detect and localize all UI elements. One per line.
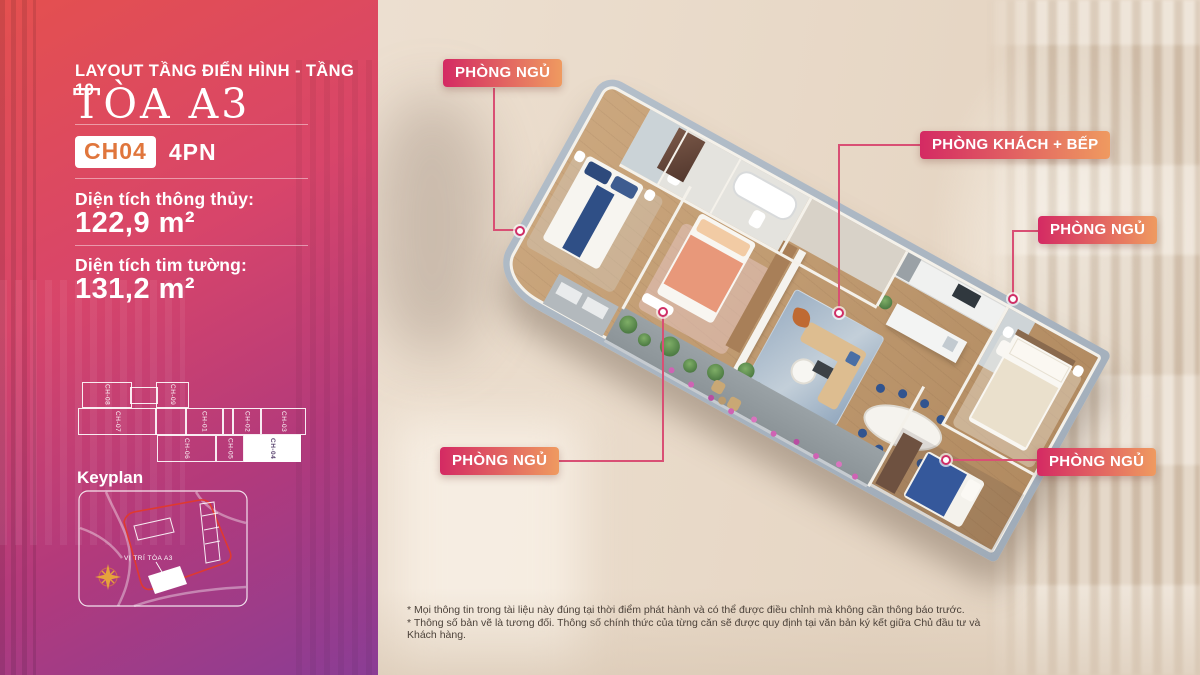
compass-icon [95, 564, 121, 590]
strip-unit-ch06: CH-06 [157, 435, 216, 462]
strip-unit-ch09: CH-09 [156, 382, 189, 408]
strip-unit-ch01: CH-01 [185, 408, 223, 435]
divider [75, 245, 308, 246]
room-label-bedroom-top: PHÒNG NGỦ [443, 59, 562, 87]
leader-dot [941, 455, 951, 465]
info-panel: LAYOUT TẦNG ĐIỂN HÌNH - TẦNG 19 TÒA A3 C… [0, 0, 378, 675]
strip-unit-label: CH-09 [169, 384, 176, 405]
keyplan-marker-label: VỊ TRÍ TÒA A3 [124, 553, 173, 562]
keyplan-marker-arrow [156, 562, 162, 572]
leader-dot [515, 226, 525, 236]
strip-unit-label: CH-04 [269, 438, 276, 459]
footnotes: * Mọi thông tin trong tài liệu này đúng … [407, 604, 1007, 642]
room-label-bedroom-right: PHÒNG NGỦ [1038, 216, 1157, 244]
leader-line [493, 229, 517, 231]
divider [75, 178, 308, 179]
room-label-bedroom-bottom-left: PHÒNG NGỦ [440, 447, 559, 475]
strip-unit-label: CH-02 [244, 411, 251, 432]
strip-unit-ch05: CH-05 [216, 435, 244, 462]
footnote-line-2: * Thông số bản vẽ là tương đối. Thông số… [407, 617, 1007, 642]
leader-line [550, 460, 664, 462]
leader-line [662, 316, 664, 462]
unit-code-badge: CH04 [75, 136, 156, 168]
leader-line [1012, 230, 1014, 296]
footnote-line-1: * Mọi thông tin trong tài liệu này đúng … [407, 604, 1007, 617]
divider [75, 124, 308, 125]
unit-type: 4PN [169, 139, 217, 166]
stripe-texture [296, 60, 378, 675]
strip-unit-ch08: CH-08 [82, 382, 132, 408]
strip-unit-ch04-highlighted: CH-04 [244, 435, 301, 462]
strip-unit-label: CH-05 [227, 438, 234, 459]
strip-unit-ch02: CH-02 [233, 408, 261, 435]
gross-area-value: 131,2 m² [75, 273, 195, 306]
strip-unit-ch07: CH-07 [78, 408, 157, 435]
leader-line [493, 88, 495, 231]
strip-unit-label: CH-07 [114, 411, 121, 432]
net-area-value: 122,9 m² [75, 207, 195, 240]
strip-connector [130, 387, 158, 404]
background-plant-shadow [372, 95, 492, 355]
keyplan-map: VỊ TRÍ TÒA A3 [78, 490, 248, 607]
leader-line [838, 144, 840, 310]
room-label-bedroom-bottom-right: PHÒNG NGỦ [1037, 448, 1156, 476]
strip-unit-ch03: CH-03 [261, 408, 306, 435]
strip-core [223, 408, 233, 435]
strip-unit-label: CH-08 [104, 384, 111, 405]
room-label-living-kitchen: PHÒNG KHÁCH + BẾP [920, 131, 1110, 159]
strip-unit-label: CH-01 [201, 411, 208, 432]
keyplan-title: Keyplan [77, 468, 143, 488]
leader-dot [1008, 294, 1018, 304]
tower-title: TÒA A3 [73, 80, 250, 128]
leader-line [838, 144, 922, 146]
strip-connector [155, 408, 187, 435]
brochure-canvas: PHÒNG NGỦ PHÒNG KHÁCH + BẾP PHÒNG NGỦ PH… [0, 0, 1200, 675]
unit-row: CH04 4PN [75, 136, 217, 168]
leader-line [950, 459, 1040, 461]
keyplan-buildings [134, 502, 220, 563]
strip-unit-label: CH-03 [280, 411, 287, 432]
leader-line [1012, 230, 1040, 232]
strip-unit-label: CH-06 [183, 438, 190, 459]
keyplan-tower-a3-highlight [148, 566, 187, 594]
leader-dot [834, 308, 844, 318]
leader-dot [658, 307, 668, 317]
